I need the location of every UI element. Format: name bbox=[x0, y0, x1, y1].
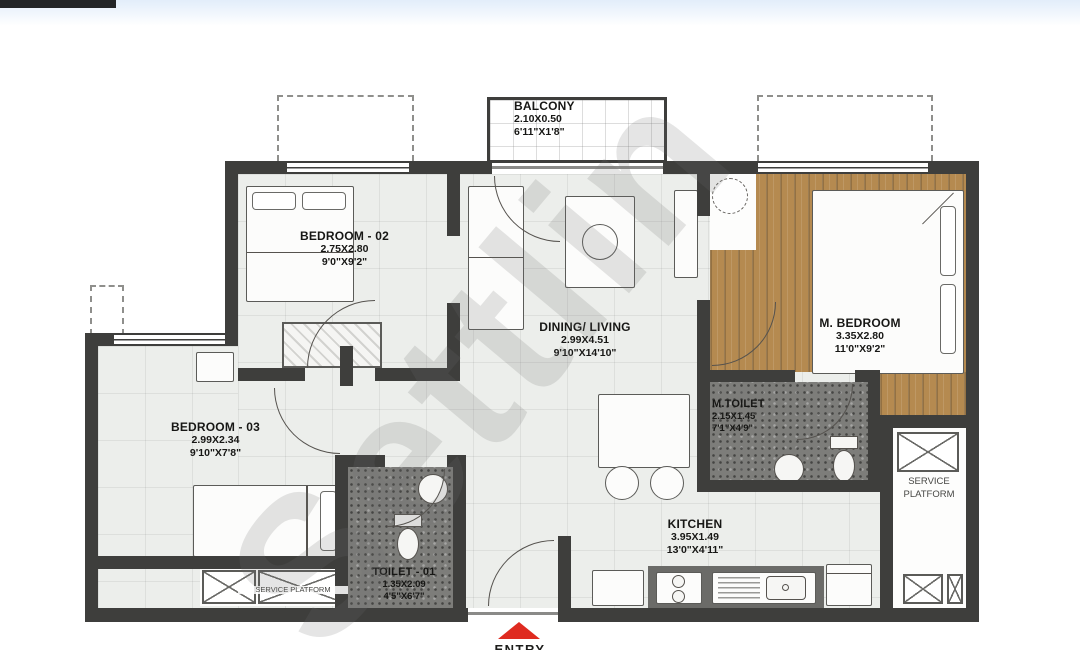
dining-chair-icon bbox=[605, 466, 639, 500]
room-label-toilet-01: TOILET - 01 1.35X2.09 4'5"X6'7" bbox=[352, 566, 456, 602]
wall-segment bbox=[558, 536, 571, 608]
dashed-projection bbox=[277, 95, 414, 161]
room-dim-ft: 11'0"X9'2" bbox=[770, 343, 950, 356]
dashed-projection bbox=[757, 95, 933, 161]
bed-sheet-line bbox=[306, 486, 308, 556]
room-name: BEDROOM - 02 bbox=[252, 229, 437, 243]
washer-icon bbox=[826, 564, 872, 606]
room-label-dining-living: DINING/ LIVING 2.99X4.51 9'10"X14'10" bbox=[495, 320, 675, 360]
washer-line bbox=[827, 573, 871, 574]
page-top-tint bbox=[0, 0, 1080, 26]
room-label-master-bedroom: M. BEDROOM 3.35X2.80 11'0"X9'2" bbox=[770, 316, 950, 356]
room-name: M. BEDROOM bbox=[770, 316, 950, 330]
wc-icon bbox=[833, 450, 855, 482]
room-name: BEDROOM - 03 bbox=[118, 420, 313, 434]
service-xbox bbox=[947, 574, 963, 604]
wall-segment bbox=[85, 333, 98, 621]
dining-chair-icon bbox=[650, 466, 684, 500]
room-dim-ft: 9'0"X9'2" bbox=[252, 256, 437, 269]
room-dim-ft: 7'1"X4'9" bbox=[712, 423, 792, 434]
window bbox=[287, 161, 409, 174]
room-dim-m: 2.99X4.51 bbox=[495, 334, 675, 347]
pillow-icon bbox=[940, 206, 956, 276]
wall-segment bbox=[98, 333, 114, 346]
room-dim-m: 2.10X0.50 bbox=[514, 113, 644, 126]
room-name: KITCHEN bbox=[630, 517, 760, 531]
wall-segment bbox=[558, 608, 979, 622]
room-dim-m: 2.75X2.80 bbox=[252, 243, 437, 256]
top-left-bar bbox=[0, 0, 116, 8]
wall-segment bbox=[225, 161, 238, 346]
entry-label: ENTRY bbox=[472, 642, 568, 650]
round-table-icon bbox=[712, 178, 748, 214]
wall-segment bbox=[710, 370, 795, 382]
service-platform-right-label: SERVICE PLATFORM bbox=[893, 476, 965, 502]
wall-segment bbox=[447, 161, 460, 236]
wc-tank-icon bbox=[830, 436, 858, 449]
sink-drain-icon bbox=[782, 584, 789, 591]
entry-triangle-icon bbox=[498, 622, 540, 639]
room-dim-ft: 6'11"X1'8" bbox=[514, 126, 644, 139]
room-dim-m: 2.99X2.34 bbox=[118, 434, 313, 447]
balcony-sill bbox=[490, 166, 667, 169]
wall-segment bbox=[697, 161, 710, 216]
tv-unit-circle-icon bbox=[582, 224, 618, 260]
room-label-balcony: BALCONY 2.10X0.50 6'11"X1'8" bbox=[514, 99, 644, 139]
wall-segment bbox=[697, 480, 880, 492]
room-label-master-toilet: M.TOILET 2.15X1.45 7'1"X4'9" bbox=[712, 398, 792, 434]
service-platform-bottom-label: SERVICE PLATFORM bbox=[238, 586, 348, 594]
dining-table-icon bbox=[598, 394, 690, 468]
dashed-projection bbox=[90, 285, 124, 335]
wall-segment bbox=[697, 300, 710, 492]
floor-master-bedroom-wood-2 bbox=[880, 372, 966, 415]
drainboard-icon bbox=[718, 577, 760, 599]
pillow-icon bbox=[252, 192, 296, 210]
side-table-icon bbox=[196, 352, 234, 382]
wall-segment bbox=[966, 161, 979, 622]
service-xbox bbox=[903, 574, 943, 604]
wall-segment bbox=[98, 556, 348, 569]
cabinet-icon bbox=[674, 190, 698, 278]
window bbox=[758, 161, 928, 174]
room-dim-m: 3.35X2.80 bbox=[770, 330, 950, 343]
room-dim-ft: 9'10"X14'10" bbox=[495, 347, 675, 360]
sofa-divider-line bbox=[469, 257, 523, 258]
service-xbox bbox=[897, 432, 959, 472]
room-name: M.TOILET bbox=[712, 398, 792, 411]
pillow-icon bbox=[302, 192, 346, 210]
room-name: BALCONY bbox=[514, 99, 644, 113]
floor-plan-page: BALCONY 2.10X0.50 6'11"X1'8" BEDROOM - 0… bbox=[0, 0, 1080, 650]
entry-threshold bbox=[468, 612, 558, 615]
room-dim-m: 2.15X1.45 bbox=[712, 411, 792, 422]
wall-segment bbox=[868, 370, 880, 480]
room-label-bedroom-02: BEDROOM - 02 2.75X2.80 9'0"X9'2" bbox=[252, 229, 437, 269]
room-name: TOILET - 01 bbox=[352, 566, 456, 579]
wc-icon bbox=[397, 528, 419, 560]
wall-segment bbox=[375, 368, 460, 381]
wall-segment bbox=[880, 415, 893, 608]
room-label-bedroom-03: BEDROOM - 03 2.99X2.34 9'10"X7'8" bbox=[118, 420, 313, 460]
room-dim-m: 1.35X2.09 bbox=[352, 579, 456, 590]
room-dim-ft: 9'10"X7'8" bbox=[118, 447, 313, 460]
room-name: DINING/ LIVING bbox=[495, 320, 675, 334]
wall-segment bbox=[663, 161, 758, 174]
wall-segment bbox=[85, 608, 468, 622]
hob-burner-icon bbox=[672, 590, 685, 603]
room-dim-ft: 4'5"X6'7" bbox=[352, 591, 456, 602]
window bbox=[114, 333, 225, 346]
wall-segment bbox=[238, 368, 305, 381]
room-label-kitchen: KITCHEN 3.95X1.49 13'0"X4'11" bbox=[630, 517, 760, 557]
fridge-icon bbox=[592, 570, 644, 606]
hob-burner-icon bbox=[672, 575, 685, 588]
room-dim-m: 3.95X1.49 bbox=[630, 531, 760, 544]
room-dim-ft: 13'0"X4'11" bbox=[630, 544, 760, 557]
wall-segment bbox=[340, 346, 353, 386]
